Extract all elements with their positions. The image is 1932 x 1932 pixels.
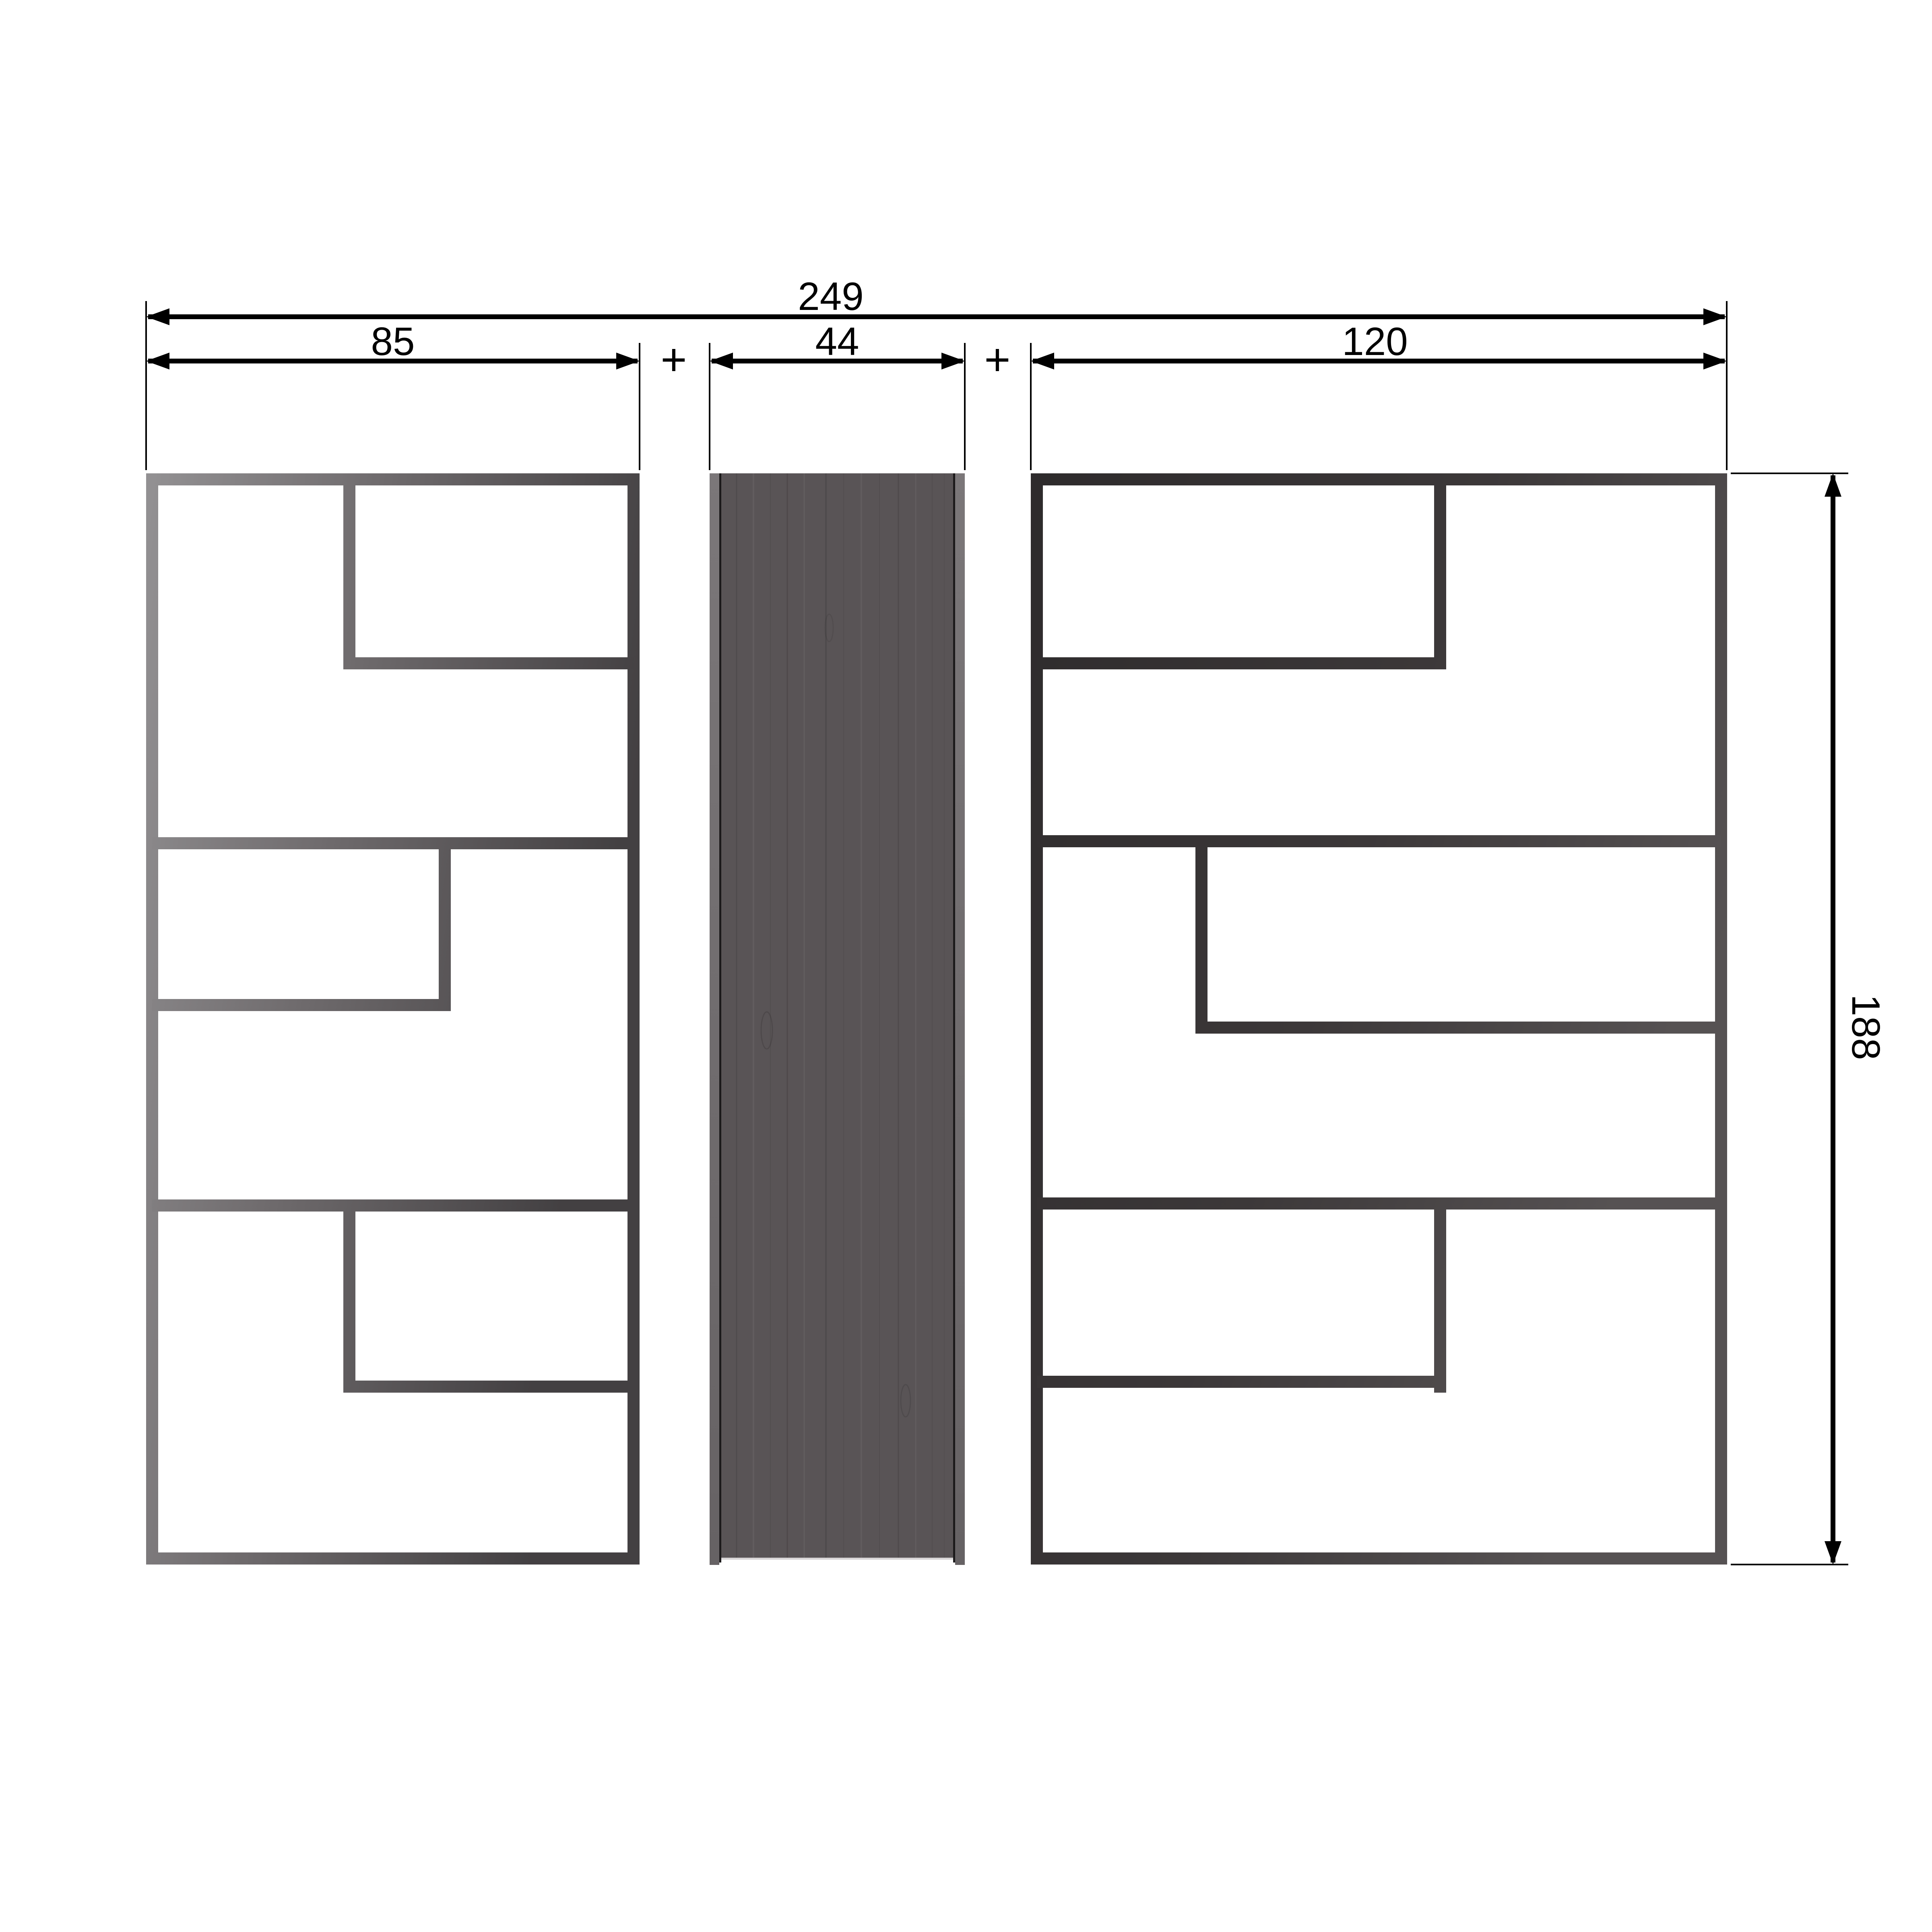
panel-left-edge-line (719, 473, 721, 1563)
dim-label-total-width: 249 (798, 274, 864, 318)
panel-bottom-highlight (721, 1558, 953, 1560)
dimension-drawing-canvas: 249 85 44 120 + + 188 (0, 0, 1932, 1932)
center-panel (710, 473, 965, 1565)
panel-right-edge-line (953, 473, 955, 1563)
dimension-drawing: 249 85 44 120 + + 188 (0, 0, 1932, 1932)
panel-left-edge (710, 473, 719, 1565)
canvas-background (0, 0, 1932, 1932)
dim-label-right-width: 120 (1342, 319, 1408, 363)
panel-right-edge (955, 473, 965, 1565)
dim-label-height: 188 (1844, 994, 1888, 1060)
dim-label-panel-width: 44 (815, 319, 859, 363)
dim-label-left-width: 85 (371, 319, 415, 363)
plus-sign: + (661, 334, 687, 385)
plus-sign: + (984, 334, 1010, 385)
panel-body (721, 473, 953, 1559)
